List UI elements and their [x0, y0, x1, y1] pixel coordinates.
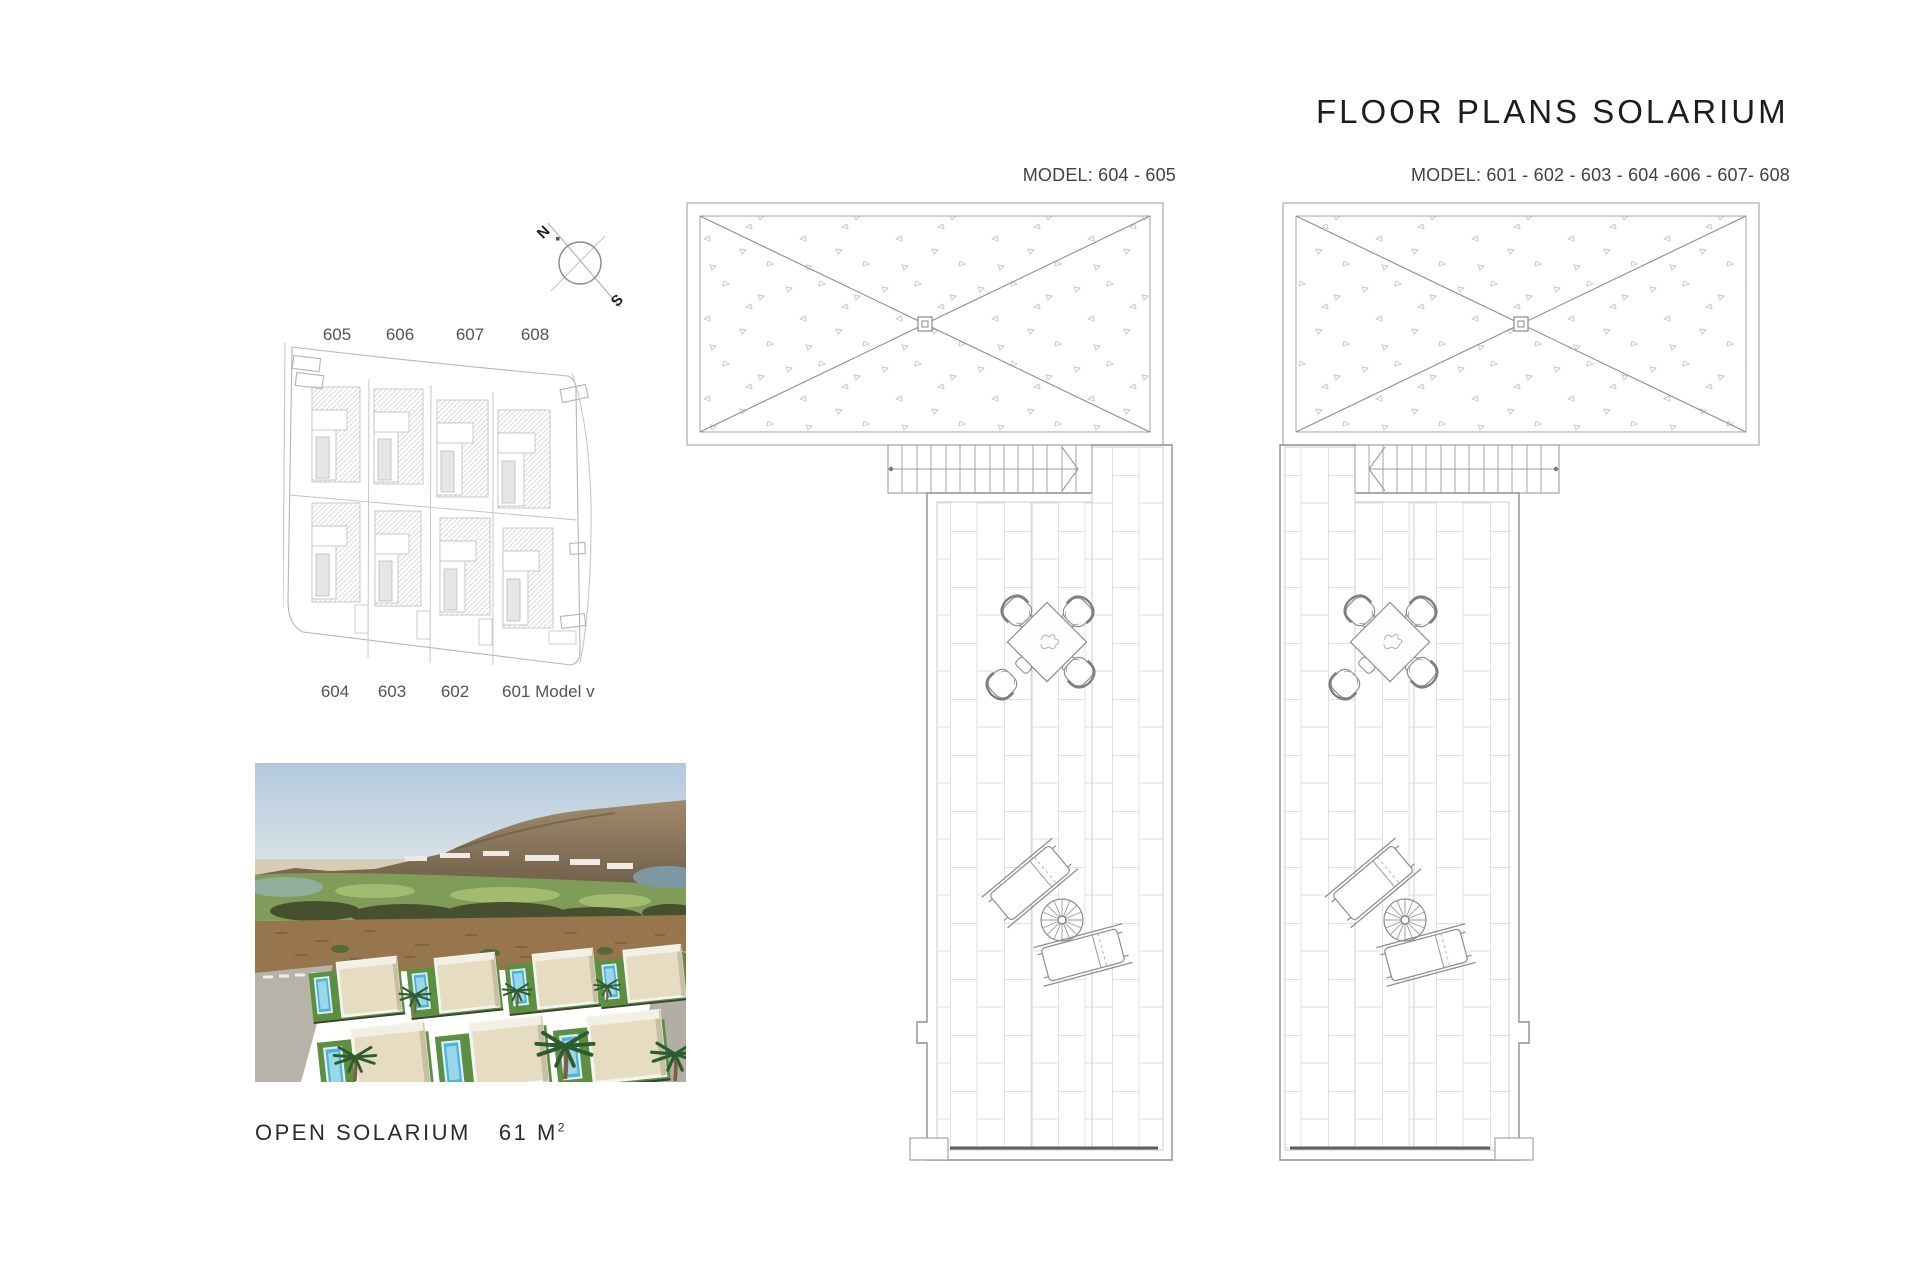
roof-right	[1283, 203, 1759, 445]
solarium-area-label: OPEN SOLARIUM61 M2	[255, 1120, 564, 1146]
site-plan-drawing: 605 606 607 608	[283, 313, 595, 708]
plot-label-605: 605	[323, 325, 351, 344]
floorplans-drawing	[680, 195, 1790, 1180]
plot-label-607: 607	[456, 325, 484, 344]
plot-label-608: 608	[521, 325, 549, 344]
plot-label-602: 602	[441, 682, 469, 701]
terrace-left	[910, 445, 1172, 1160]
plot-label-606: 606	[386, 325, 414, 344]
footing-left	[910, 1138, 948, 1160]
roof-left	[687, 203, 1163, 445]
solarium-area-value: 61 M	[499, 1120, 558, 1145]
compass-south-label: S	[608, 291, 627, 310]
plot-label-603: 603	[378, 682, 406, 701]
solarium-area-exponent: 2	[558, 1121, 565, 1135]
page-title: FLOOR PLANS SOLARIUM	[1316, 93, 1789, 131]
compass-icon: N S	[525, 205, 635, 315]
terrace-right	[1280, 445, 1533, 1160]
footing-right	[1495, 1138, 1533, 1160]
site-buildings	[312, 387, 576, 645]
floorplan-right	[1280, 203, 1759, 1160]
model-label-left: MODEL: 604 - 605	[850, 165, 1176, 186]
model-label-right: MODEL: 601 - 602 - 603 - 604 -606 - 607-…	[1400, 165, 1790, 186]
floorplan-left	[687, 203, 1172, 1160]
plot-label-604: 604	[321, 682, 349, 701]
stairs-right	[1355, 445, 1559, 493]
plot-label-601-model-villa: 601 Model villa	[502, 682, 595, 701]
compass-circle	[559, 242, 601, 284]
aerial-photo	[255, 763, 686, 1082]
page: FLOOR PLANS SOLARIUM MODEL: 604 - 605 MO…	[0, 0, 1920, 1280]
solarium-name: OPEN SOLARIUM	[255, 1120, 471, 1145]
stairs-left	[888, 445, 1092, 493]
